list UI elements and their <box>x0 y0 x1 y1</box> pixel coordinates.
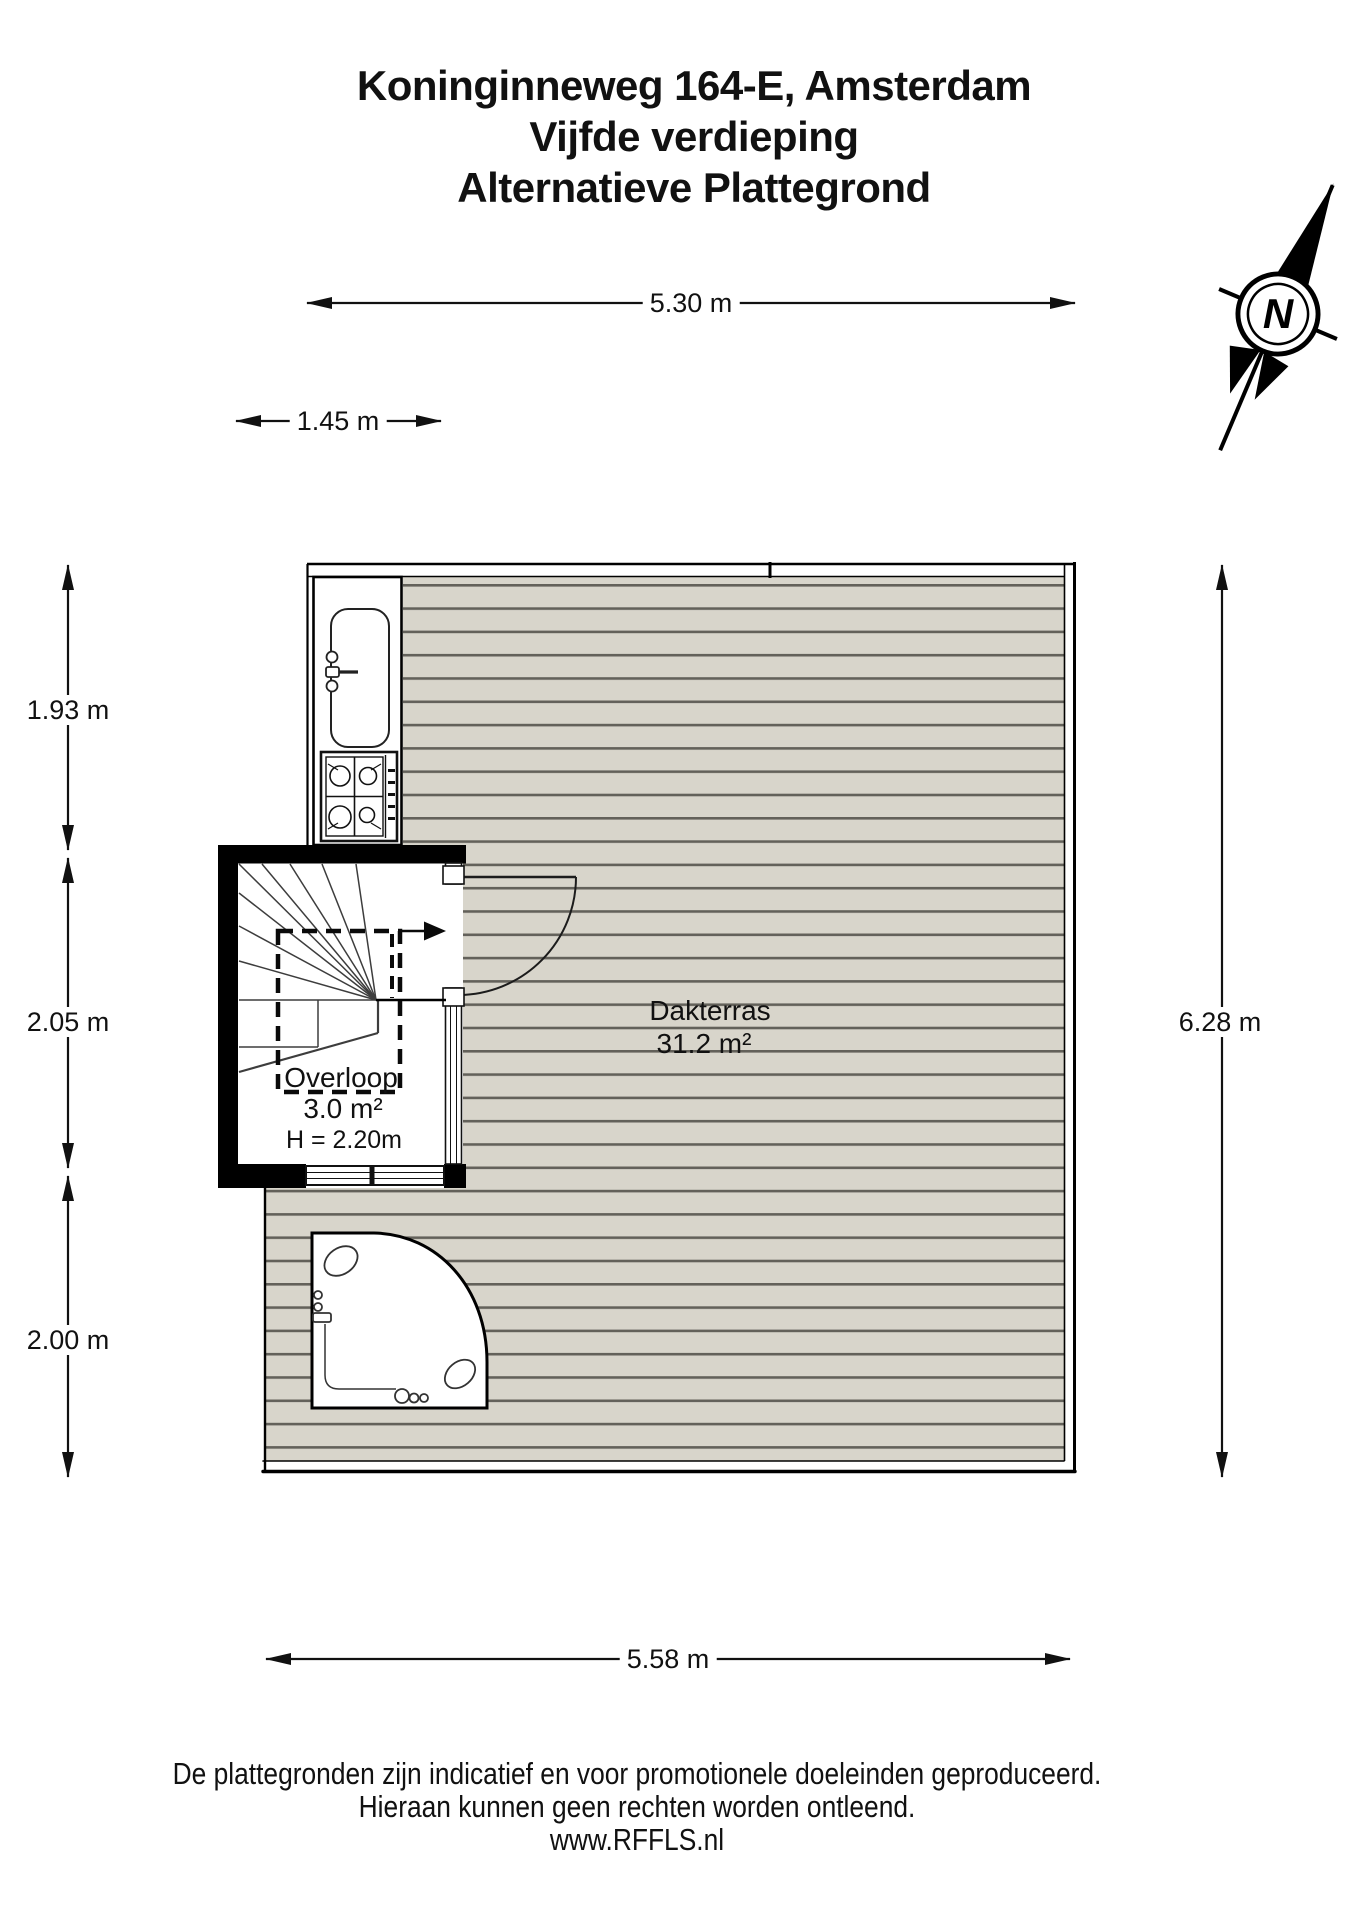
window <box>306 1166 444 1185</box>
overloop-ceiling-height: H = 2.20m <box>286 1125 402 1155</box>
sink-icon <box>326 609 389 747</box>
title-floor: Vijfde verdieping <box>30 111 1358 162</box>
disclaimer-line1: De plattegronden zijn indicatief en voor… <box>96 1757 1179 1790</box>
dim-left-middle: 2.05 m <box>20 1007 117 1037</box>
page-title: Koninginneweg 164-E, Amsterdam Vijfde ve… <box>30 60 1358 213</box>
dakterras-area: 31.2 m² <box>657 1029 752 1059</box>
dakterras-name: Dakterras <box>649 996 770 1026</box>
dim-bottom-width: 5.58 m <box>620 1644 717 1674</box>
overloop-area: 3.0 m² <box>303 1094 382 1124</box>
compass-north-label: N <box>1263 290 1295 337</box>
title-variant: Alternatieve Plattegrond <box>30 162 1358 213</box>
dim-right-height: 6.28 m <box>1172 1007 1269 1037</box>
overloop-name: Overloop <box>284 1063 398 1093</box>
dim-left-top: 1.93 m <box>20 695 117 725</box>
dim-left-bottom: 2.00 m <box>20 1325 117 1355</box>
glazed-wall <box>443 863 464 1164</box>
title-address: Koninginneweg 164-E, Amsterdam <box>30 60 1358 111</box>
kitchen-counter <box>314 577 402 845</box>
footer-disclaimer: De plattegronden zijn indicatief en voor… <box>0 1757 1274 1856</box>
floorplan-page: { "title": { "address": "Koninginneweg 1… <box>0 0 1358 1920</box>
disclaimer-line2: Hieraan kunnen geen rechten worden ontle… <box>96 1790 1179 1823</box>
dim-top-width: 5.30 m <box>643 288 740 318</box>
dim-landing-width: 1.45 m <box>290 406 387 436</box>
footer-website: www.RFFLS.nl <box>96 1823 1179 1856</box>
